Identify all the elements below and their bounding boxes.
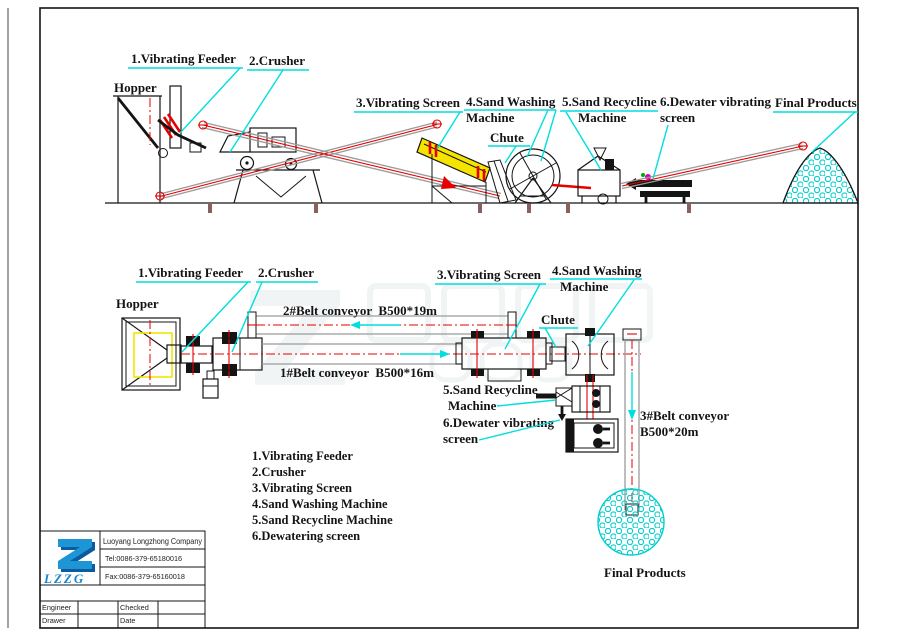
title-block: LZZG Luoyang Longzhong Company Tel:0086-… <box>40 531 205 628</box>
dewater-label-plan-line1: 6.Dewater vibrating <box>443 415 554 430</box>
sand-recycline-machine-elevation <box>578 148 620 204</box>
vibrating-feeder-label-plan: 1.Vibrating Feeder <box>138 265 243 280</box>
hopper-plan <box>122 318 181 390</box>
elevation-view: Hopper 1.Vibrating Feeder 2.Crusher 3.Vi… <box>105 51 858 213</box>
elevation-labels: Hopper 1.Vibrating Feeder 2.Crusher 3.Vi… <box>114 51 858 179</box>
sand-recycline-label-plan-line2: Machine <box>448 398 497 413</box>
belt-conveyor-3-plan <box>623 329 641 515</box>
belt3-label-line1: 3#Belt conveyor <box>640 408 729 423</box>
sand-washing-label-line2: Machine <box>466 110 515 125</box>
elevation-ground <box>105 203 858 213</box>
chute-label-plan: Chute <box>541 312 575 327</box>
drawing-page: Hopper 1.Vibrating Feeder 2.Crusher 3.Vi… <box>0 0 899 640</box>
dewater-screen-plan <box>566 419 618 452</box>
plan-view: Hopper 1.Vibrating Feeder 2.Crusher 2#Be… <box>116 263 729 580</box>
belt2-label: 2#Belt conveyor B500*19m <box>283 303 437 318</box>
lzzg-logo: LZZG <box>43 539 95 586</box>
sand-recycline-label-plan-line1: 5.Sand Recycline <box>443 382 538 397</box>
belt3-label-line2: B500*20m <box>640 424 699 439</box>
legend-item: 2.Crusher <box>252 465 306 479</box>
drawer-label: Drawer <box>42 616 66 625</box>
legend-item: 3.Vibrating Screen <box>252 481 352 495</box>
belt-conveyor-1-elevation <box>155 120 442 200</box>
final-products-label-plan: Final Products <box>604 565 686 580</box>
sand-recycline-label-line2: Machine <box>578 110 627 125</box>
sand-washing-label-line1: 4.Sand Washing <box>466 94 556 109</box>
legend-item: 6.Dewatering screen <box>252 529 360 543</box>
hopper-label-plan: Hopper <box>116 296 159 311</box>
sand-washing-label-plan-line1: 4.Sand Washing <box>552 263 642 278</box>
company-tel: Tel:0086-379-65180016 <box>105 554 182 563</box>
crusher-label: 2.Crusher <box>249 53 305 68</box>
sand-recycline-label-line1: 5.Sand Recycline <box>562 94 657 109</box>
legend: 1.Vibrating Feeder 2.Crusher 3.Vibrating… <box>252 449 393 543</box>
dewater-label-line1: 6.Dewater vibrating <box>660 94 771 109</box>
final-products-pile <box>783 148 858 203</box>
legend-item: 4.Sand Washing Machine <box>252 497 388 511</box>
logo-text: LZZG <box>43 571 85 586</box>
dewater-label-plan-line2: screen <box>443 431 479 446</box>
engineer-label: Engineer <box>42 603 72 612</box>
date-label: Date <box>120 616 135 625</box>
crusher-label-plan: 2.Crusher <box>258 265 314 280</box>
legend-item: 1.Vibrating Feeder <box>252 449 353 463</box>
final-products-pile-plan <box>598 489 664 555</box>
chute-label: Chute <box>490 130 524 145</box>
hopper-label: Hopper <box>114 80 157 95</box>
sand-washing-machine-plan <box>566 328 614 419</box>
vibrating-screen-label: 3.Vibrating Screen <box>356 95 461 110</box>
vibrating-feeder-label: 1.Vibrating Feeder <box>131 51 236 66</box>
legend-item: 5.Sand Recycline Machine <box>252 513 393 527</box>
company-fax: Fax:0086-379-65160018 <box>105 572 185 581</box>
final-products-label: Final Products <box>775 95 857 110</box>
belt1-label: 1#Belt conveyor B500*16m <box>280 365 434 380</box>
hopper-elevation <box>113 86 181 203</box>
vibrating-screen-label-plan: 3.Vibrating Screen <box>437 267 542 282</box>
checked-label: Checked <box>120 603 149 612</box>
dewater-label-line2: screen <box>660 110 696 125</box>
company-name: Luoyang Longzhong Company <box>103 537 202 546</box>
sand-washing-label-plan-line2: Machine <box>560 279 609 294</box>
